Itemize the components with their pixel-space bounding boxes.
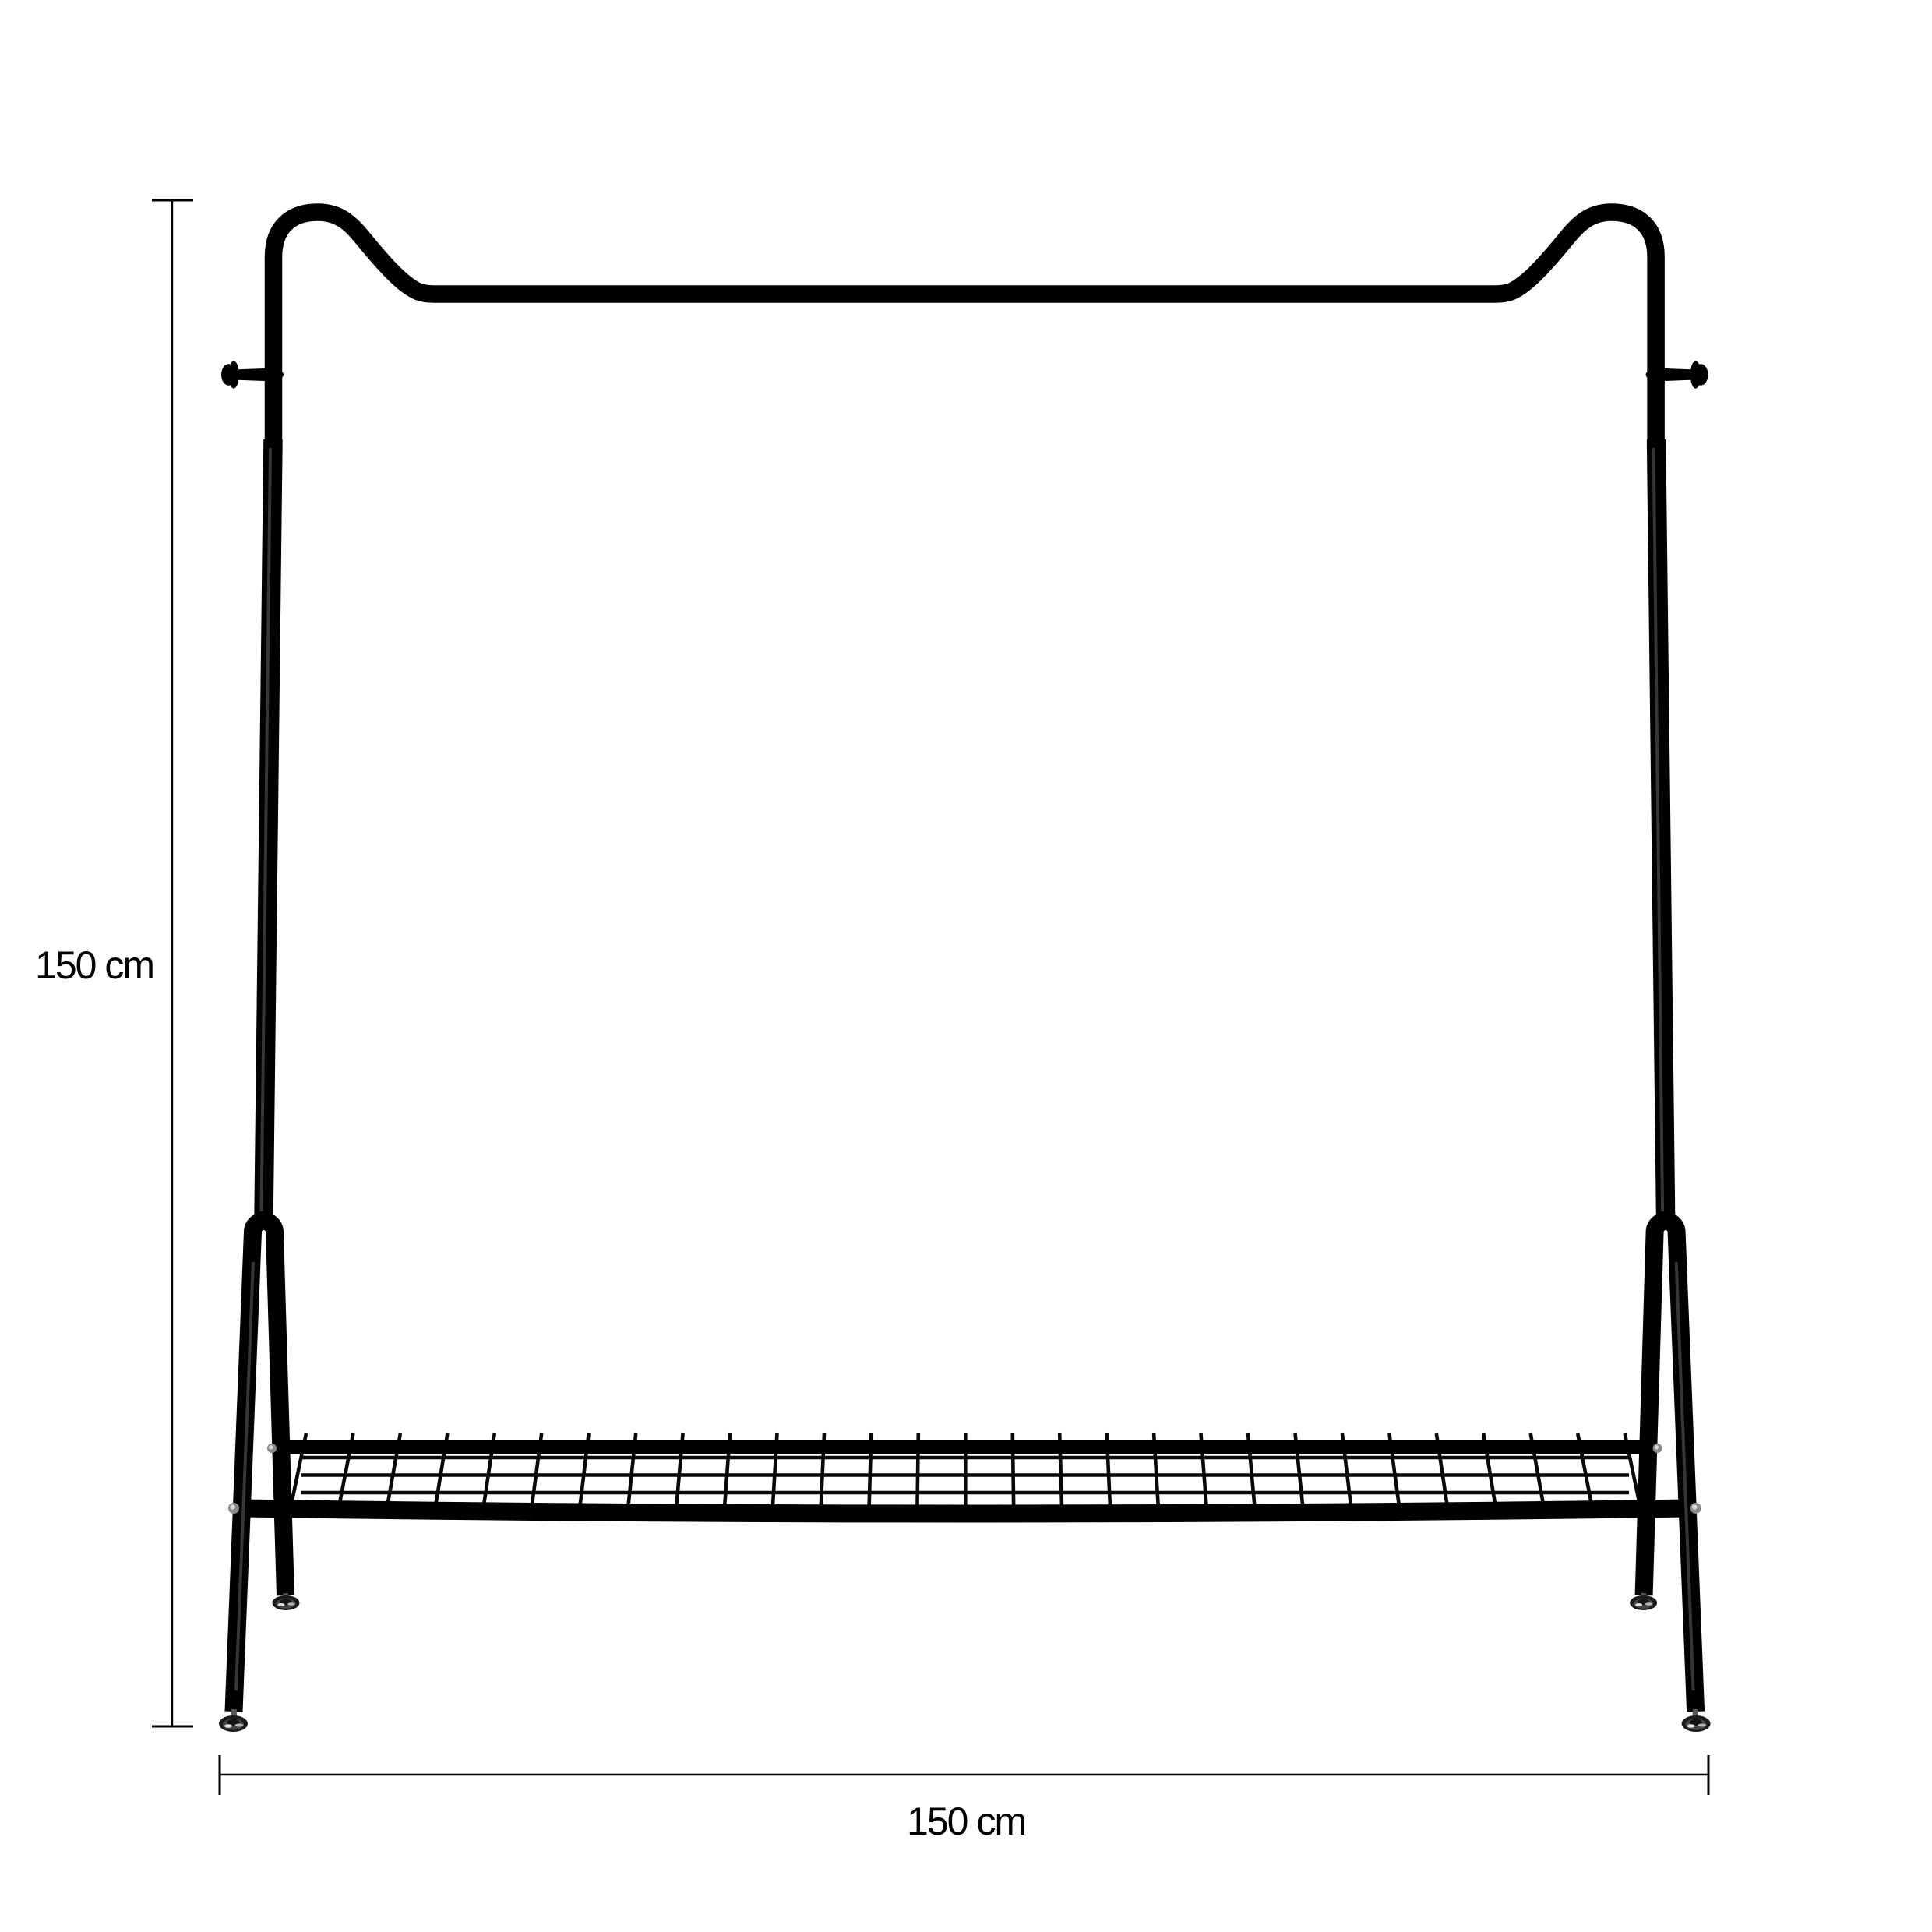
svg-text:150 cm: 150 cm <box>907 1800 1025 1843</box>
svg-text:150 cm: 150 cm <box>35 943 153 987</box>
